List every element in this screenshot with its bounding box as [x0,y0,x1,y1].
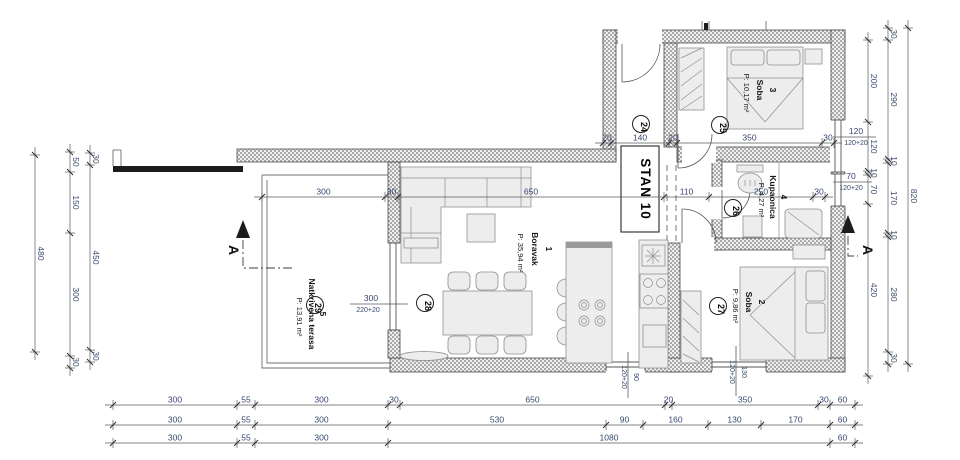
annotation-text: 10 [889,230,899,240]
annotation-text: P: 35,94 m² [516,234,525,273]
annotation-text: 140 [633,133,647,143]
annotation-text: 300 [314,415,328,425]
annotation-text: 20 [602,133,612,143]
annotation-text: 300 [314,433,328,443]
annotation-text: 350 [738,395,752,405]
terrace-outline [262,175,390,368]
dining-table [443,272,532,354]
nightstand [805,49,822,64]
coffee-table [467,214,495,242]
annotation-text: 120+20 [844,140,868,147]
annotation-text: 300 [316,187,330,197]
annotation-text: 130 [727,415,741,425]
position-marker: 25 [712,117,729,134]
section-mark-left [236,220,292,268]
annotation-text: 820 [909,189,919,203]
annotation-text: 120+20 [839,185,863,192]
shower-icon [785,209,822,238]
annotation-text: 170 [788,415,802,425]
double-bed [740,267,828,360]
annotation-text: Kupaonica [768,175,778,219]
annotation-text: 120 [869,139,879,153]
annotation-text: 220+20 [356,307,380,314]
annotation-text: Natkrivena terasa [307,279,317,350]
annotation-text: 55 [241,415,251,425]
annotation-text: 130 [740,366,747,378]
annotation-text: 30 [387,187,397,197]
annotation-text: 30 [91,154,101,164]
annotation-text: 60 [838,415,848,425]
annotation-text: 55 [241,395,251,405]
annotation-text: 420 [869,283,879,297]
annotation-text: 29 [313,303,323,313]
section-arrow-icon [236,220,250,238]
position-marker: 27 [710,298,727,315]
position-marker: 28 [417,295,434,312]
annotation-text: 3 [768,88,778,93]
wall-terrace-divider-lower [388,330,400,358]
dimension-chain: 30290101701028030 [883,20,899,372]
dimension-chain: 3005530030650203503060 [105,395,863,411]
annotation-text: 70 [869,185,879,195]
annotation-text: 280 [889,287,899,301]
annotation-text: 25 [718,123,728,133]
wall-living-bedroom2-divider [668,243,680,372]
annotation-text: 90 [620,415,630,425]
position-marker: 26 [725,200,742,217]
annotation-text: 150 [71,195,81,209]
annotation-text: 160 [668,415,682,425]
annotation-text: Soba [755,80,765,101]
wall-living-top [237,149,616,162]
kitchen-counter [639,240,668,368]
annotation-text: 450 [91,250,101,264]
nightstand [793,245,825,259]
dimension-chain: 480 [30,147,46,360]
annotation-text: P: 4,27 m² [757,183,766,218]
annotation-text: 300 [168,433,182,443]
annotation-text: 30 [814,187,824,197]
annotation-text: 30 [823,133,833,143]
annotation-text: A [860,245,876,255]
annotation-text: 30 [889,29,899,39]
annotation-text: 20 [668,133,678,143]
wall-terrace-divider-upper [388,162,400,243]
annotation-text: 70 [846,171,856,181]
annotation-text: 28 [423,301,433,311]
dimension-chain: 820 [903,20,919,372]
wardrobe [679,48,704,110]
annotation-text: 30 [71,357,81,367]
entrance-door-icon [622,44,660,82]
kitchen-island [557,242,612,363]
wardrobe [681,291,701,363]
position-marker: 24 [633,116,650,133]
annotation-text: 300 [364,293,378,303]
dimension-chain: 30055300108060 [105,433,863,449]
floor-plan-page: 3005530030650203503060300553005309016013… [0,0,960,460]
annotation-text: STAN 10 [638,158,653,220]
dimension-chain: 3045030 [85,145,101,370]
radiator [400,352,448,361]
sink-icon [645,248,661,264]
annotation-text: 300 [168,395,182,405]
annotation-text: 170 [889,191,899,205]
annotation-text: 120+20 [620,365,627,389]
annotation-text: 55 [241,433,251,443]
annotation-text: 30 [889,353,899,363]
stove-icon [640,274,668,308]
annotation-text: 30 [819,395,829,405]
neighbour-wall-stub [113,150,243,172]
annotation-text: 300 [168,415,182,425]
dimension-chain: 2001201070420 [863,32,879,384]
annotation-text: A [226,245,242,255]
annotation-text: 300 [71,287,81,301]
annotation-text: 60 [838,433,848,443]
annotation-text: Soba [744,292,754,313]
annotation-text: 350 [742,133,756,143]
wall-hall-bedroom3-divider [664,43,677,147]
dimension-chain: 5015030030 [65,144,81,376]
annotation-text: 30 [91,351,101,361]
terrace-sliding-door-icon [388,243,400,330]
corridor-dashed-boundary [667,165,676,242]
annotation-text: 90 [632,373,639,381]
annotation-text: 26 [731,206,741,216]
annotation-text: 20 [664,395,674,405]
annotation-text: 2 [757,300,767,305]
bathroom-fixtures [737,163,822,238]
annotation-text: 10 [869,168,879,178]
annotation-text: 480 [36,246,46,260]
annotation-text: 24 [639,122,649,132]
washing-machine [743,216,762,237]
annotation-text: 30 [389,395,399,405]
annotation-text: 10 [889,156,899,166]
annotation-text: P: 10,17 m² [742,74,751,113]
annotation-text: 50 [71,157,81,167]
annotation-text: 530 [490,415,504,425]
sofa [401,167,531,263]
annotation-text: 1 [544,247,554,252]
annotation-text: 120+20 [728,360,735,384]
upper-structure-ticks [702,21,766,30]
annotation-text: 200 [869,74,879,88]
annotation-text: 650 [524,187,538,197]
dimension-chain: 300553005309016013017060 [105,415,863,431]
annotation-text: 300 [314,395,328,405]
annotation-text: Boravak [530,232,540,266]
floor-plan-drawing: 3005530030650203503060300553005309016013… [0,0,960,460]
annotation-text: 1080 [600,433,619,443]
annotation-text: P: 9,86 m² [731,289,740,324]
annotation-text: 60 [838,395,848,405]
annotation-text: 290 [889,92,899,106]
annotation-text: P: 13,91 m² [295,298,304,337]
annotation-text: 4 [779,195,789,200]
annotation-text: 110 [680,187,694,197]
annotation-text: 27 [716,304,726,314]
annotation-text: 650 [525,395,539,405]
annotation-text: 120 [849,126,863,136]
